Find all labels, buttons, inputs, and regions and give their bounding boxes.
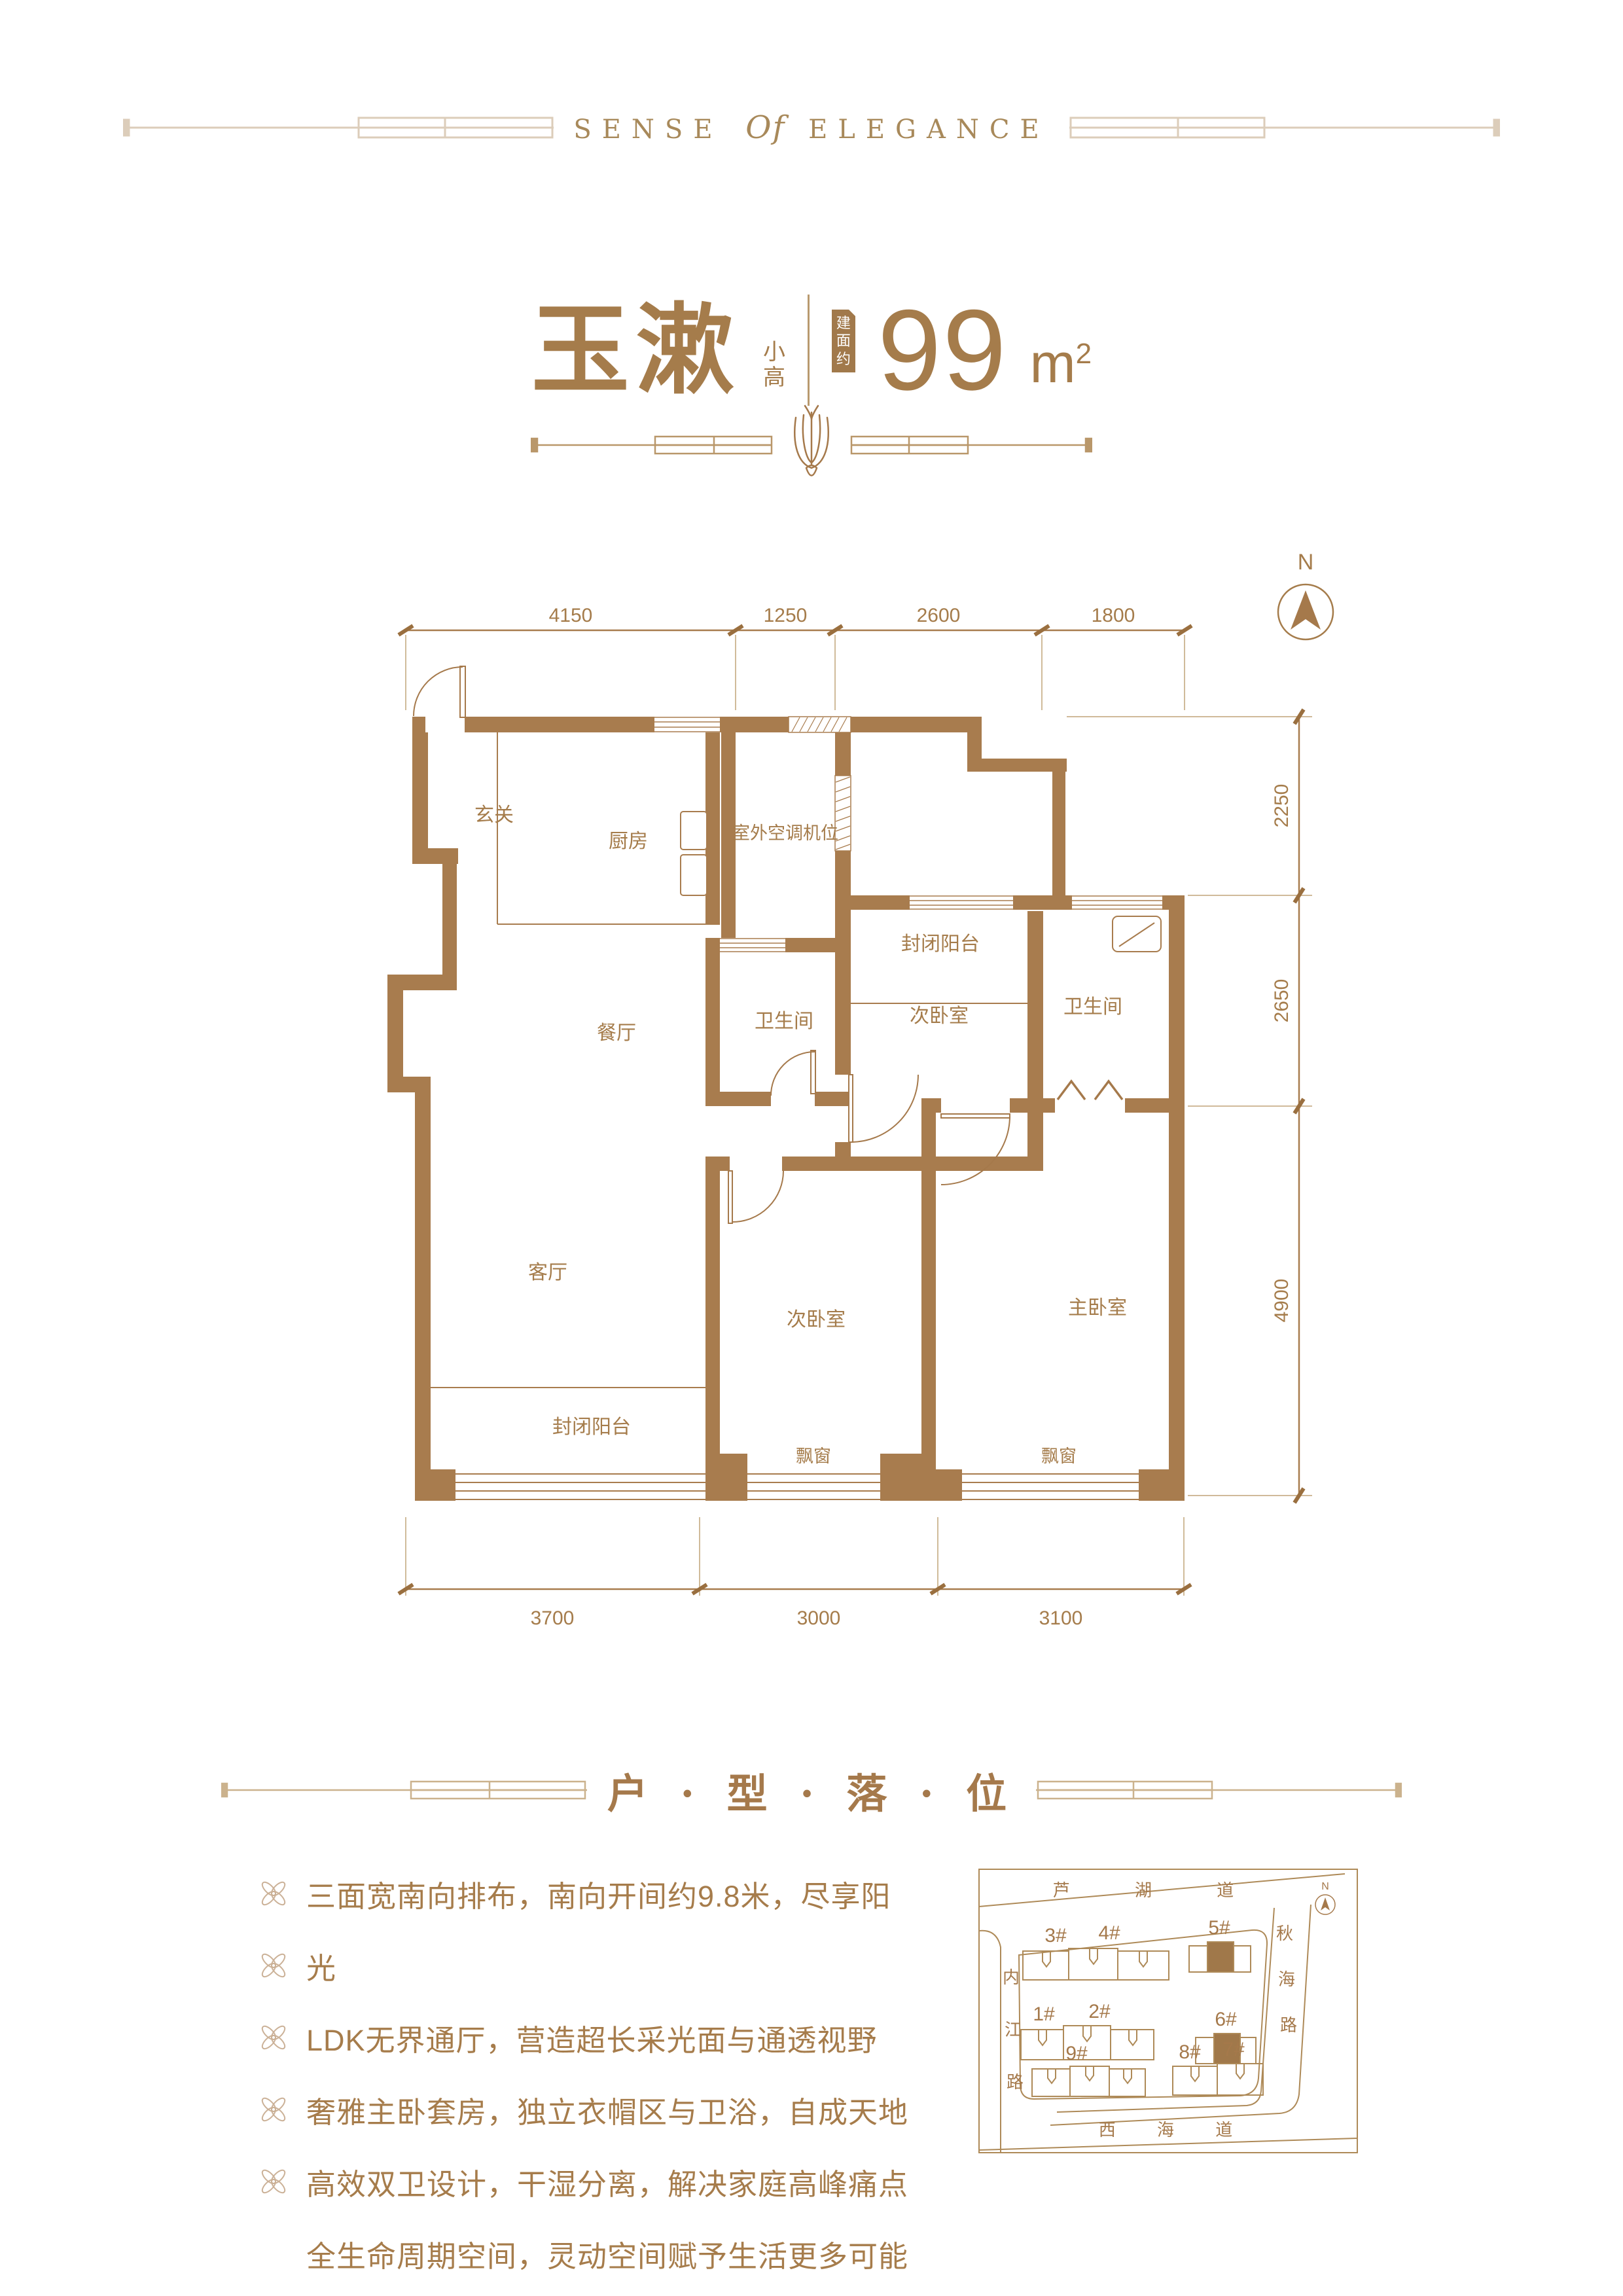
svg-text:N: N [1321, 1881, 1329, 1892]
room-label-bedroom-south: 次卧室 [787, 1309, 846, 1331]
svg-text:3000: 3000 [797, 1607, 841, 1629]
building-label: 9# [1065, 2043, 1088, 2064]
road-label-west-2: 江 [1005, 2020, 1022, 2039]
north-arrow-icon: N [1278, 550, 1333, 639]
area-badge: 建面约 [832, 310, 855, 372]
building-labels: 3# 4# 5# 1# 2# 6# 9# 8# 7# [1033, 1917, 1245, 2064]
room-label-kitchen: 厨房 [609, 831, 648, 852]
svg-text:2250: 2250 [1271, 784, 1293, 828]
floor-plan: N [366, 517, 1387, 1630]
building-label: 8# [1179, 2041, 1201, 2063]
feature-item: 奢雅主卧套房，独立衣帽区与卫浴，自成天地 [260, 2073, 993, 2145]
building-label: 6# [1215, 2009, 1237, 2030]
road-label-west-1: 内 [1003, 1967, 1020, 1987]
flower-bullet-icon [260, 2024, 287, 2051]
road-label-east-2: 海 [1278, 1969, 1295, 1989]
building-label: 1# [1033, 2003, 1055, 2025]
tulip-emblem-icon [790, 402, 833, 488]
room-label-living: 客厅 [528, 1262, 567, 1283]
svg-text:N: N [1298, 550, 1314, 575]
flower-bullet-icon [260, 1880, 287, 1907]
feature-item: 三面宽南向排布，南向开间约9.8米，尽享阳 [260, 1857, 993, 1929]
room-label-dining: 餐厅 [597, 1022, 636, 1044]
room-label-baywindow-east: 飘窗 [1041, 1446, 1077, 1466]
map-north-arrow-icon: N [1315, 1881, 1335, 1914]
section-ornament-right [1035, 1774, 1402, 1806]
room-label-bath-mid: 卫生间 [755, 1011, 813, 1032]
section-title-band: 户 · 型 · 落 · 位 [0, 1754, 1623, 1826]
road-label-north: 芦 湖 道 [1053, 1880, 1264, 1900]
road-label-east-3: 路 [1280, 2015, 1297, 2035]
building-label: 4# [1098, 1922, 1120, 1944]
flower-bullet-icon [260, 1952, 287, 1979]
svg-text:1250: 1250 [764, 605, 808, 626]
svg-text:3700: 3700 [531, 1607, 575, 1629]
room-label-balcony-north: 封闭阳台 [901, 933, 980, 955]
header-ornament-right [1068, 109, 1500, 146]
section-ornament-left [221, 1774, 588, 1806]
area-value: 99 [878, 293, 1008, 408]
flower-bullet-icon [260, 2168, 287, 2195]
flower-bullet-icon [260, 2096, 287, 2123]
building-label: 3# [1044, 1925, 1067, 1946]
room-label-entry: 玄关 [474, 804, 514, 826]
feature-list: 三面宽南向排布，南向开间约9.8米，尽享阳 光 [260, 1857, 993, 2289]
header-ornament-left [123, 109, 555, 146]
road-label-west-3: 路 [1007, 2072, 1024, 2092]
room-label-bath-east: 卫生间 [1063, 996, 1122, 1018]
emblem-divider [0, 399, 1623, 491]
feature-item: 全生命周期空间，灵动空间赋予生活更多可能 [260, 2217, 993, 2289]
room-label-master-bedroom: 主卧室 [1068, 1297, 1127, 1319]
road-label-east-1: 秋 [1276, 1924, 1293, 1943]
building-label: 5# [1208, 1917, 1230, 1939]
svg-text:4150: 4150 [549, 605, 593, 626]
unit-name: 玉漱 [531, 301, 741, 399]
brand-title: SENSE Of ELEGANCE [573, 109, 1049, 146]
divider-line-left [531, 429, 773, 461]
road-label-south: 西 海 道 [1099, 2120, 1251, 2140]
header: SENSE Of ELEGANCE [0, 98, 1623, 157]
title-divider-bar [808, 295, 810, 406]
svg-text:2650: 2650 [1271, 979, 1293, 1023]
room-label-baywindow-west: 飘窗 [796, 1446, 831, 1466]
room-label-ac-unit: 室外空调机位 [732, 823, 838, 843]
svg-text:1800: 1800 [1092, 605, 1135, 626]
brand-of: Of [745, 109, 785, 146]
room-label-bedroom-north: 次卧室 [910, 1005, 969, 1027]
site-map: 芦 湖 道 内 江 路 秋 海 路 西 海 道 N [978, 1869, 1358, 2153]
feature-item: 高效双卫设计，干湿分离，解决家庭高峰痛点 [260, 2145, 993, 2217]
divider-line-right [850, 429, 1092, 461]
svg-text:4900: 4900 [1271, 1279, 1293, 1323]
feature-item: LDK无界通厅，营造超长采光面与通透视野 [260, 2001, 993, 2073]
unit-type-tag: 小高 [763, 340, 785, 391]
svg-text:3100: 3100 [1039, 1607, 1083, 1629]
section-title: 户 · 型 · 落 · 位 [607, 1761, 1016, 1820]
feature-item: 光 [260, 1929, 993, 2001]
area-unit: m2 [1030, 336, 1092, 391]
svg-text:2600: 2600 [917, 605, 961, 626]
building-label: 2# [1088, 2001, 1111, 2022]
page: SENSE Of ELEGANCE 玉漱 小高 建面约 99 m2 [0, 0, 1623, 2296]
building-label: 7# [1222, 2039, 1245, 2060]
room-label-balcony-south: 封闭阳台 [552, 1416, 631, 1438]
